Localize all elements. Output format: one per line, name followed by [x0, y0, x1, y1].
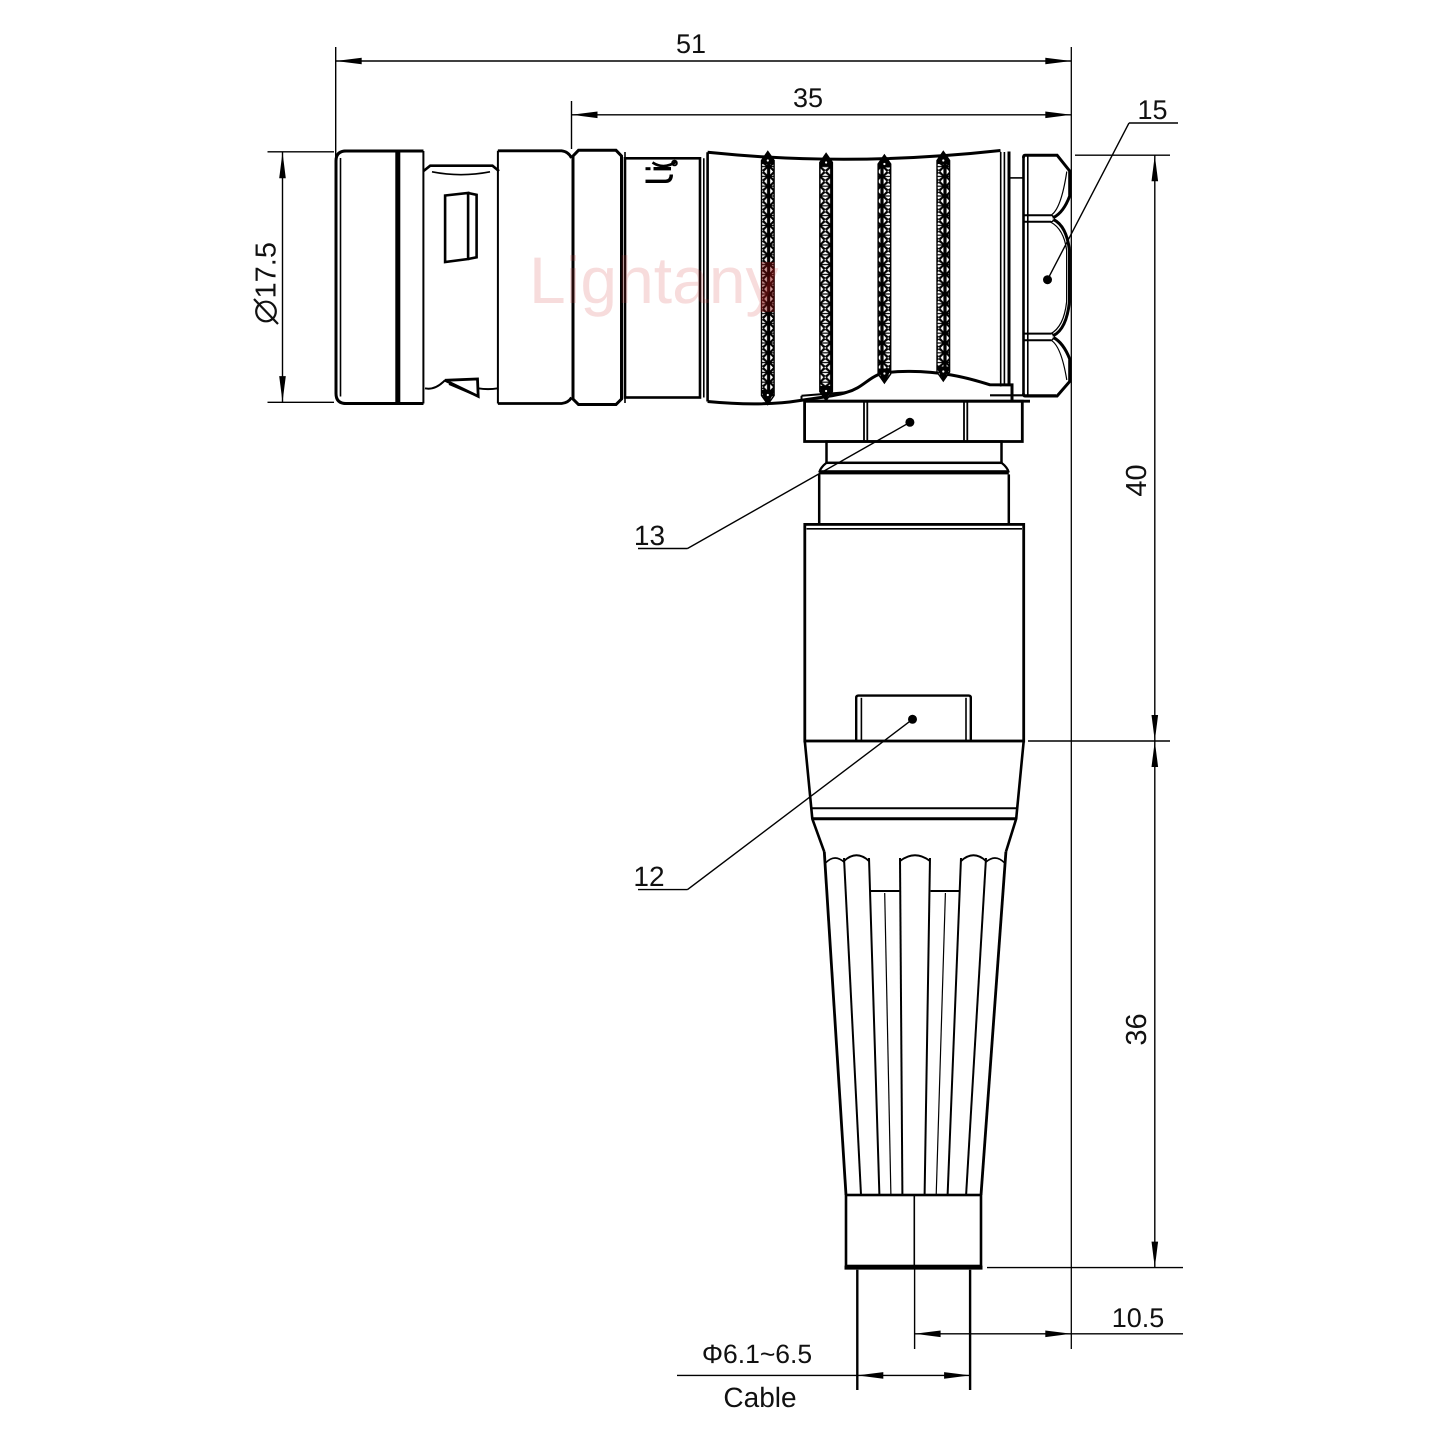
svg-text:40: 40 [1121, 464, 1153, 496]
svg-text:13: 13 [634, 520, 665, 551]
svg-text:35: 35 [793, 83, 823, 113]
svg-text:12: 12 [633, 861, 664, 892]
svg-text:17.5: 17.5 [251, 242, 283, 298]
svg-text:15: 15 [1137, 95, 1167, 125]
svg-text:51: 51 [676, 29, 706, 59]
svg-text:Lightany: Lightany [529, 243, 779, 317]
svg-text:Cable: Cable [723, 1382, 796, 1413]
svg-text:36: 36 [1121, 1013, 1153, 1045]
svg-text:10.5: 10.5 [1112, 1303, 1165, 1333]
svg-text:Φ6.1~6.5: Φ6.1~6.5 [702, 1339, 812, 1369]
